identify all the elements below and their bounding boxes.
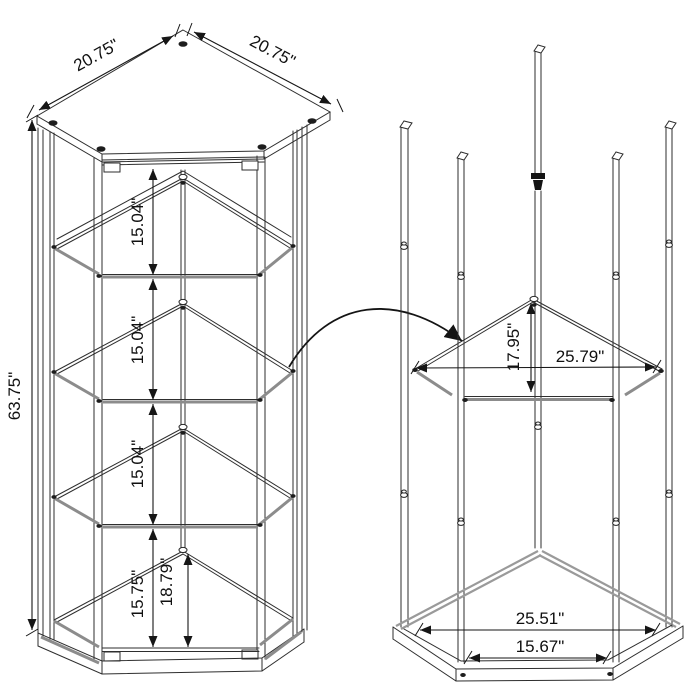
door-hinge-bottom-left (104, 652, 120, 661)
dim-label-top-edge-left: 20.75" (70, 35, 122, 75)
dim-label-overall-height: 63.75" (5, 372, 24, 421)
dim-label-top-edge-right: 20.75" (247, 31, 299, 71)
dim-base-span: 25.51" (415, 609, 660, 636)
curio-cabinet-dimension-drawing: 20.75" 20.75" 63.75" 15.04" 15.04" 15.04… (0, 0, 700, 700)
dim-top-edge-left: 20.75" (27, 24, 180, 118)
dim-label-interior-depth: 18.79" (157, 558, 176, 607)
dim-label-shelf-gap-lower: 15.04" (128, 440, 147, 489)
shelf-callout-arrow (289, 309, 462, 367)
dim-label-shelf-gap-middle: 15.04" (128, 316, 147, 365)
dim-label-shelf-gap-top: 15.04" (128, 198, 147, 247)
frame-structure-view: 17.95" 25.79" 25.51" 15.67" (393, 45, 683, 681)
assembled-cabinet-view: 20.75" 20.75" 63.75" 15.04" 15.04" 15.04… (5, 23, 343, 674)
dim-label-shelf-depth: 17.95" (504, 323, 523, 372)
dim-label-bottom-section: 15.75" (128, 570, 147, 619)
door-hinge-top-left (104, 163, 120, 172)
center-post-joint (531, 173, 545, 179)
dim-label-base-front-edge: 15.67" (516, 637, 565, 656)
door-hinge-top-right (242, 161, 258, 170)
dim-interior-depth: 18.79" (157, 554, 188, 647)
dim-shelf-gaps: 15.04" 15.04" 15.04" 15.75" (128, 169, 153, 647)
frame-middle-shelf (412, 296, 664, 402)
dim-label-base-span: 25.51" (516, 609, 565, 628)
dim-overall-height: 63.75" (5, 115, 38, 636)
dim-shelf-depth: 17.95" (504, 303, 531, 392)
dim-label-shelf-span: 25.79" (556, 347, 605, 366)
dimension-diagram-canvas: 20.75" 20.75" 63.75" 15.04" 15.04" 15.04… (0, 0, 700, 700)
dim-top-edge-right: 20.75" (187, 23, 343, 112)
shelf-clips (401, 240, 673, 525)
